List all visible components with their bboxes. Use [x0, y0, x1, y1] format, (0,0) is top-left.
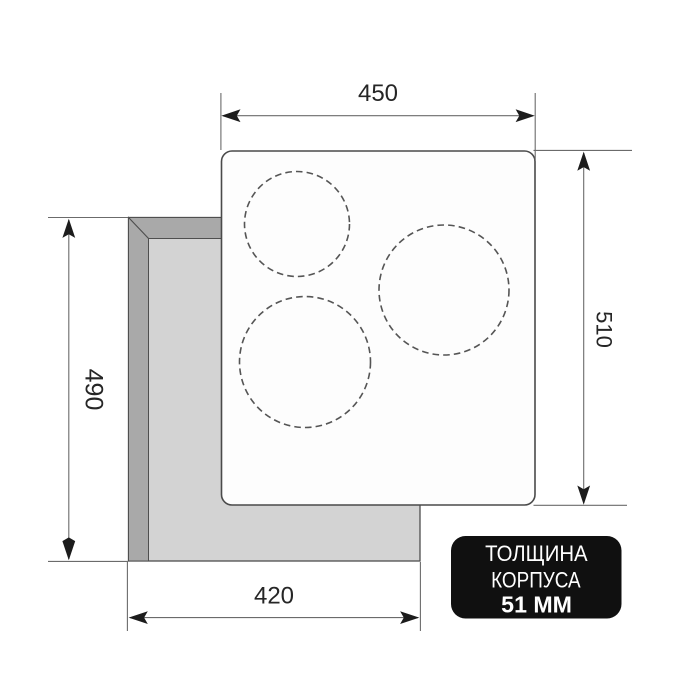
svg-text:490: 490: [80, 369, 108, 411]
svg-text:510: 510: [592, 311, 617, 348]
svg-text:450: 450: [358, 80, 398, 107]
svg-text:ТОЛЩИНА: ТОЛЩИНА: [485, 541, 588, 566]
svg-text:420: 420: [254, 582, 294, 609]
svg-text:51 ММ: 51 ММ: [501, 592, 572, 618]
svg-text:КОРПУСА: КОРПУСА: [491, 567, 581, 592]
